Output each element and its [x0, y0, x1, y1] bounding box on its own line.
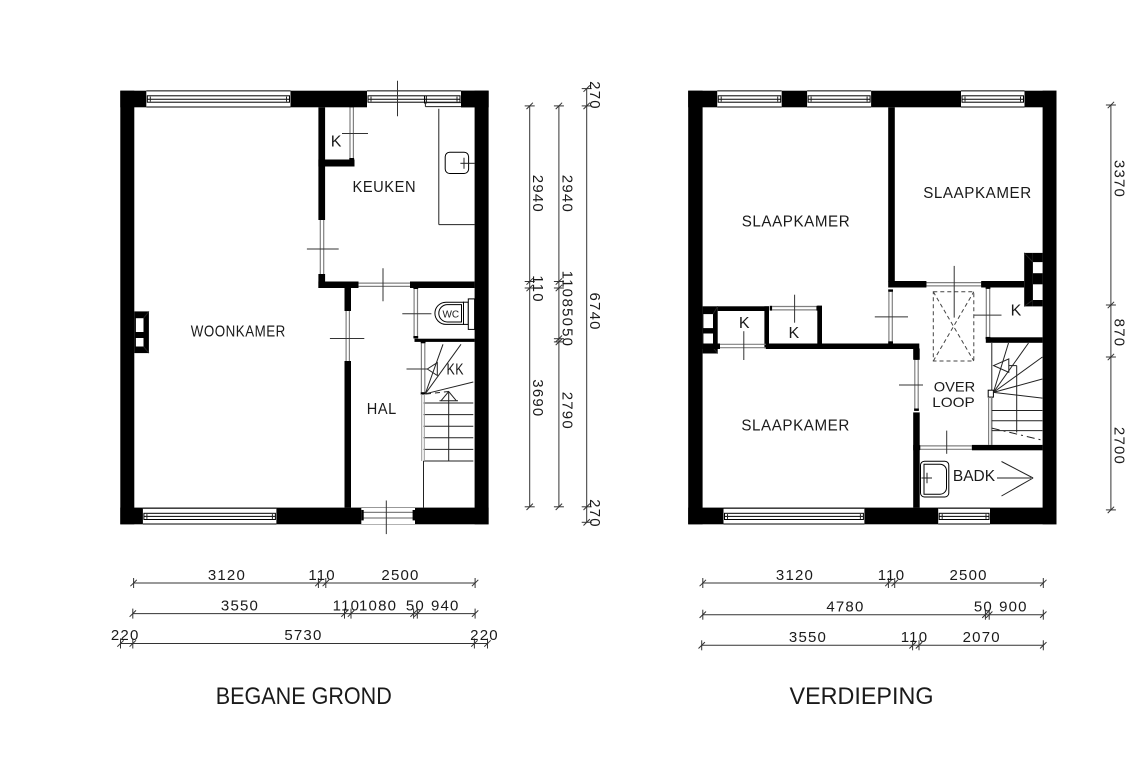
- svg-text:870: 870: [1110, 319, 1125, 348]
- svg-text:LOOP: LOOP: [932, 394, 975, 410]
- svg-text:BADK: BADK: [953, 468, 996, 485]
- svg-text:2940: 2940: [529, 175, 546, 213]
- svg-text:110: 110: [901, 629, 929, 646]
- svg-text:110: 110: [529, 275, 546, 303]
- svg-text:KK: KK: [447, 362, 465, 379]
- svg-text:1080: 1080: [359, 598, 397, 615]
- svg-text:2500: 2500: [950, 567, 988, 584]
- svg-text:270: 270: [586, 81, 603, 110]
- svg-text:50: 50: [406, 598, 425, 615]
- svg-text:3370: 3370: [1110, 160, 1125, 198]
- svg-text:SLAAPKAMER: SLAAPKAMER: [742, 213, 851, 230]
- svg-text:110: 110: [333, 598, 361, 615]
- svg-text:270: 270: [586, 499, 603, 528]
- svg-text:50: 50: [974, 599, 993, 616]
- svg-text:WC: WC: [442, 309, 459, 320]
- svg-text:4780: 4780: [826, 599, 864, 616]
- svg-text:110: 110: [308, 567, 336, 584]
- svg-text:6740: 6740: [586, 293, 603, 331]
- svg-text:5730: 5730: [284, 627, 322, 644]
- svg-text:850: 850: [558, 299, 575, 328]
- svg-text:2790: 2790: [558, 392, 575, 430]
- svg-text:3550: 3550: [221, 598, 259, 615]
- svg-text:OVER: OVER: [934, 378, 976, 394]
- svg-text:K: K: [1011, 302, 1022, 319]
- svg-text:K: K: [739, 315, 750, 332]
- svg-text:K: K: [331, 134, 342, 151]
- svg-text:2070: 2070: [963, 629, 1001, 646]
- svg-text:110: 110: [558, 271, 575, 299]
- svg-text:SLAAPKAMER: SLAAPKAMER: [923, 185, 1032, 202]
- svg-text:3550: 3550: [789, 629, 827, 646]
- svg-text:900: 900: [999, 599, 1028, 616]
- svg-text:2940: 2940: [558, 175, 575, 213]
- svg-text:220: 220: [470, 627, 499, 644]
- svg-text:50: 50: [558, 328, 575, 347]
- svg-text:K: K: [789, 325, 800, 342]
- svg-text:3690: 3690: [529, 379, 546, 417]
- svg-text:SLAAPKAMER: SLAAPKAMER: [741, 418, 850, 435]
- svg-text:2700: 2700: [1110, 427, 1125, 465]
- svg-text:220: 220: [111, 627, 140, 644]
- svg-text:BEGANE GROND: BEGANE GROND: [216, 683, 392, 710]
- svg-text:2500: 2500: [381, 567, 419, 584]
- svg-text:940: 940: [431, 598, 460, 615]
- svg-text:VERDIEPING: VERDIEPING: [790, 683, 934, 710]
- svg-text:KEUKEN: KEUKEN: [353, 179, 417, 196]
- svg-text:3120: 3120: [208, 567, 246, 584]
- svg-text:110: 110: [878, 567, 906, 584]
- svg-text:HAL: HAL: [367, 401, 397, 418]
- svg-text:3120: 3120: [776, 567, 814, 584]
- svg-text:WOONKAMER: WOONKAMER: [191, 323, 286, 340]
